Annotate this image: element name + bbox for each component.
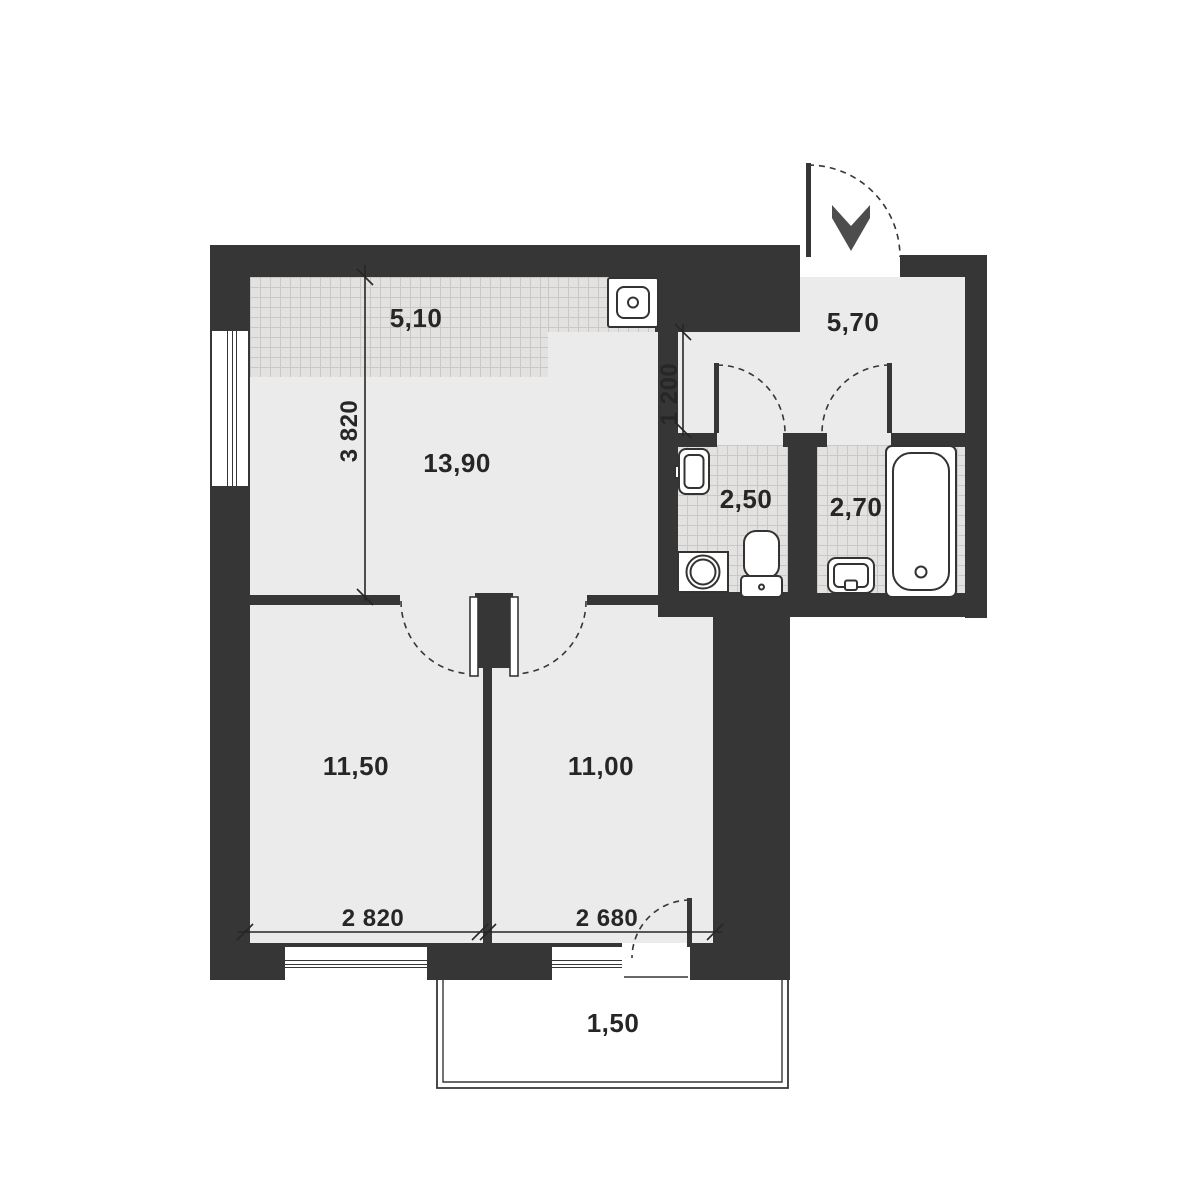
bedroom1-door-arc <box>401 601 474 674</box>
wash-basin-icon <box>675 449 709 494</box>
room-label-living: 13,90 <box>423 450 491 476</box>
room-label-kitchen: 5,10 <box>390 305 443 331</box>
dim-label-bedroom1-width: 2 820 <box>342 907 405 931</box>
entrance-arrow-icon <box>832 205 870 251</box>
bathroom-sink-icon <box>828 558 874 593</box>
dim-label-living-depth: 3 820 <box>338 400 362 463</box>
wc-door-arc <box>717 365 785 433</box>
kitchen-sink-icon <box>608 278 658 327</box>
entry-door-leaf <box>806 163 811 257</box>
room-label-bathroom: 2,70 <box>830 494 883 520</box>
floor-plan: 5,10 13,90 5,70 2,50 2,70 11,50 11,00 1,… <box>0 0 1200 1200</box>
bedroom1-door-leaf <box>470 597 478 676</box>
bedroom2-door-leaf <box>510 597 518 676</box>
balcony-door-leaf <box>687 898 692 947</box>
wc-door-leaf <box>714 363 719 433</box>
toilet-icon <box>741 531 782 597</box>
dim-label-bedroom2-width: 2 680 <box>576 907 639 931</box>
dim-label-kitchen-passage: 1 200 <box>658 363 682 426</box>
room-label-hallway: 5,70 <box>827 309 880 335</box>
balcony-door-arc <box>632 900 690 958</box>
room-label-bedroom1: 11,50 <box>323 753 389 779</box>
room-label-balcony: 1,50 <box>587 1010 640 1036</box>
bathroom-door-leaf <box>887 363 892 433</box>
bathroom-door-arc <box>822 365 890 433</box>
dimension-bedroom-widths <box>237 924 723 940</box>
bedroom2-door-arc <box>514 601 586 674</box>
bathtub-icon <box>886 446 956 597</box>
washing-machine-icon <box>678 552 728 592</box>
room-label-wc: 2,50 <box>720 486 773 512</box>
room-label-bedroom2: 11,00 <box>568 753 634 779</box>
